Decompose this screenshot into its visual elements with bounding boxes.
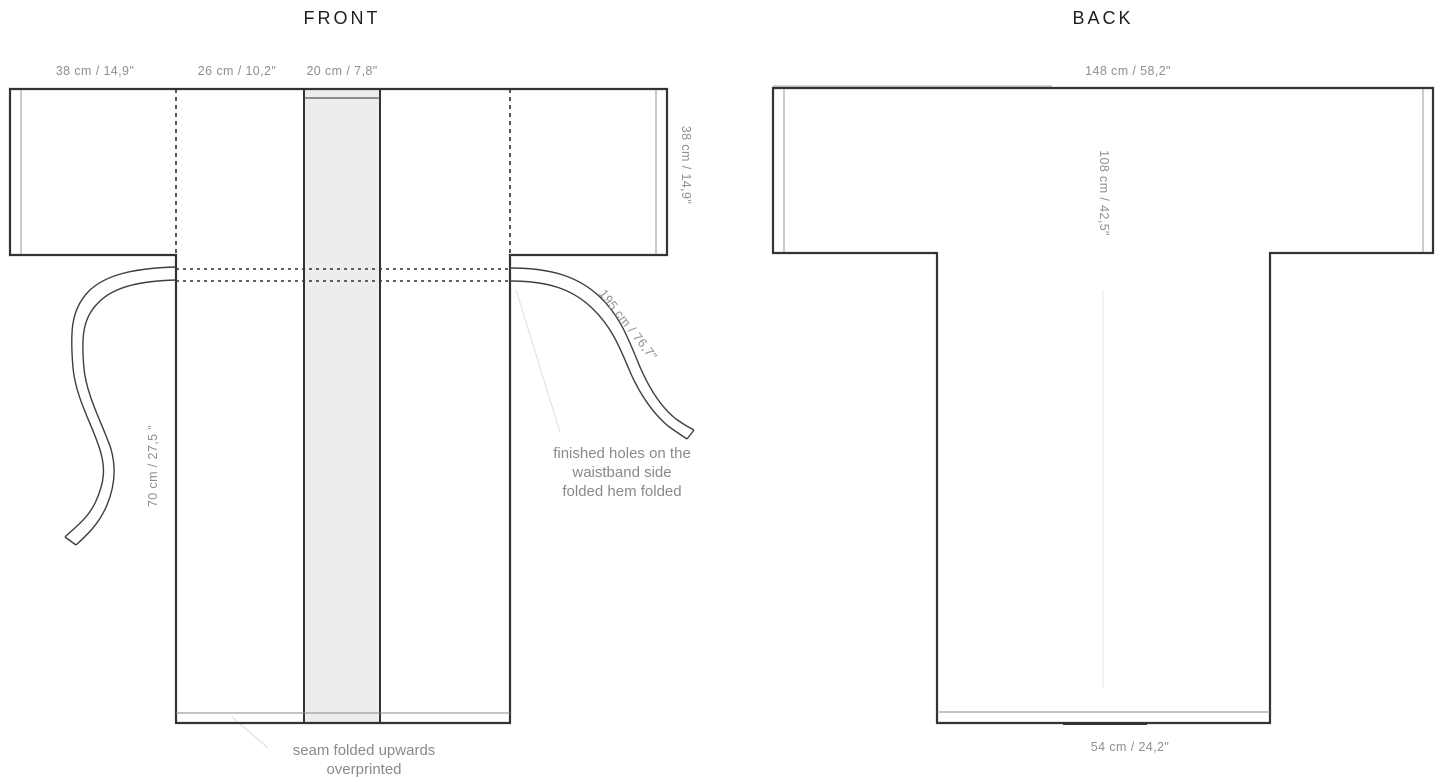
pattern-linework (0, 0, 1445, 782)
pattern-diagram: FRONT 38 cm / 14,9" 26 cm / 10,2" 20 cm … (0, 0, 1445, 782)
front-piece (10, 89, 694, 748)
front-caption-holes: finished holes on the waistband side fol… (522, 444, 722, 501)
front-caption-holes-line3: folded hem folded (522, 482, 722, 501)
front-caption-seam-line1: seam folded upwards (264, 741, 464, 760)
front-dim-sleeve-top: 38 cm / 14,9" (35, 64, 155, 78)
front-center-band (304, 90, 380, 722)
front-dim-band-top: 20 cm / 7,8" (282, 64, 402, 78)
back-dim-hem-bottom: 54 cm / 24,2" (1050, 740, 1210, 754)
front-dim-shoulder-top: 26 cm / 10,2" (177, 64, 297, 78)
front-dim-sleeve-right: 38 cm / 14,9" (679, 120, 693, 210)
front-title: FRONT (242, 8, 442, 29)
front-dim-belt-left: 70 cm / 27,5 " (146, 418, 160, 514)
back-dim-length-center: 108 cm / 42,5" (1097, 145, 1111, 241)
front-caption-seam-line2: overprinted (264, 760, 464, 779)
front-caption-holes-line1: finished holes on the (522, 444, 722, 463)
back-title: BACK (1003, 8, 1203, 29)
front-caption-seam: seam folded upwards overprinted (264, 741, 464, 779)
back-dim-width-top: 148 cm / 58,2" (1048, 64, 1208, 78)
leader-line-seam (232, 717, 268, 748)
leader-line-holes (516, 290, 560, 432)
front-caption-holes-line2: waistband side (522, 463, 722, 482)
